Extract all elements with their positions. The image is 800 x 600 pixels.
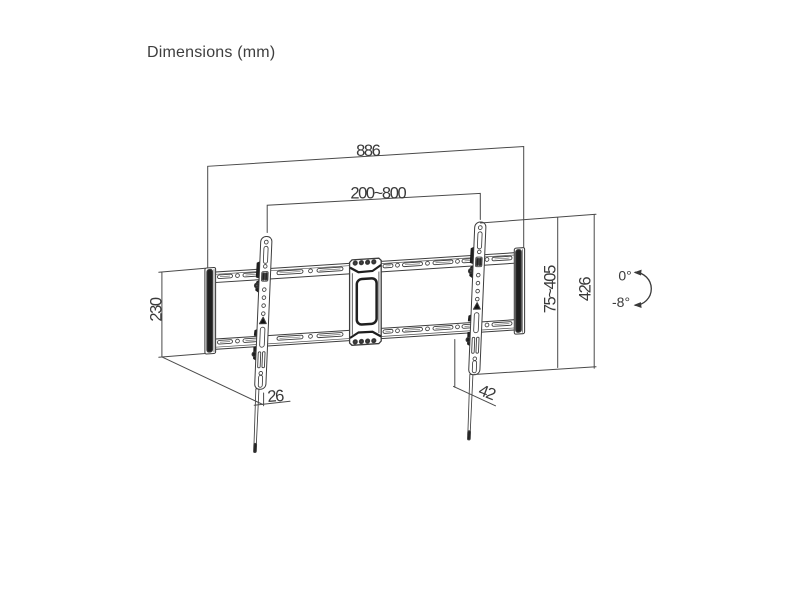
svg-text:0°: 0° [618, 268, 631, 284]
svg-text:426: 426 [577, 277, 595, 302]
svg-text:26: 26 [267, 387, 285, 406]
svg-text:75~405: 75~405 [542, 265, 560, 313]
svg-text:230: 230 [148, 297, 166, 322]
svg-text:-8°: -8° [612, 294, 630, 310]
svg-text:42: 42 [476, 381, 498, 404]
svg-text:200~800: 200~800 [350, 185, 406, 203]
svg-text:886: 886 [356, 142, 381, 160]
